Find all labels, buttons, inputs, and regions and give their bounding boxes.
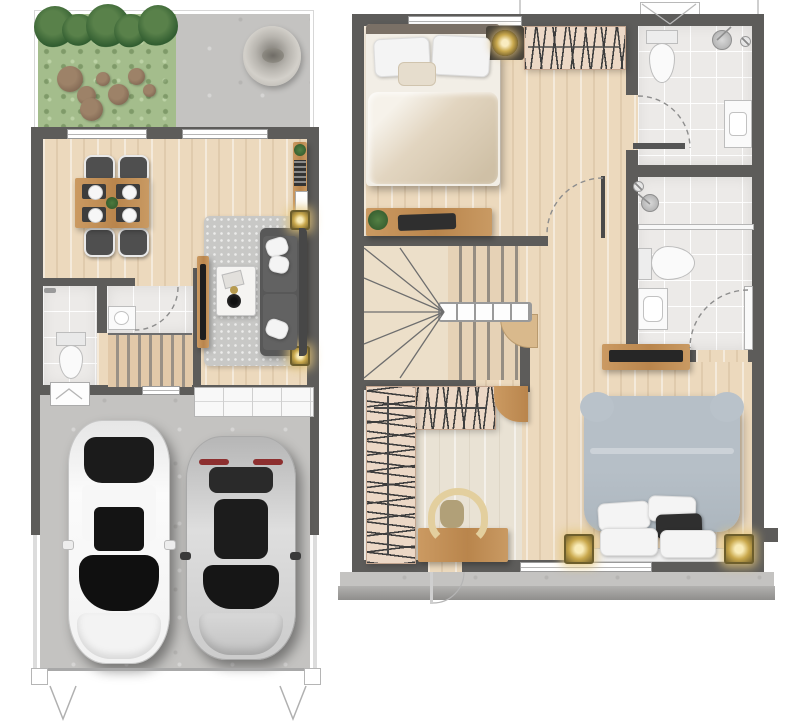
- stepping-stone: [80, 98, 103, 121]
- duvet-corner: [580, 392, 614, 422]
- balcony-divider: [752, 528, 778, 542]
- wall: [31, 278, 135, 286]
- bed-1-headboard: [366, 24, 500, 34]
- car-suv: [186, 436, 296, 660]
- sink-basin: [643, 296, 663, 322]
- gold-wall-lamp: [564, 534, 594, 564]
- garage-side-wall: [31, 395, 40, 535]
- gold-wall-lamp: [724, 534, 754, 564]
- bath2-door-gap: [696, 350, 748, 362]
- bed-1-pillow: [431, 35, 491, 78]
- suv-rear-glass: [209, 467, 273, 493]
- wall: [626, 14, 638, 95]
- shower-head: [712, 30, 732, 50]
- wall: [352, 236, 548, 246]
- handrail: [438, 302, 532, 322]
- tv: [609, 350, 683, 362]
- winder-steps: [364, 246, 448, 380]
- bed-1-duvet: [368, 92, 498, 184]
- vanity-basin: [729, 112, 747, 136]
- stepping-stone: [96, 72, 110, 86]
- floor-plan-canvas: [0, 0, 800, 722]
- master-bed-pillow: [600, 528, 658, 556]
- wall: [352, 14, 364, 570]
- sofa-backrest: [299, 228, 307, 356]
- window: [182, 129, 268, 139]
- suv-mirror: [290, 552, 301, 560]
- tv: [200, 264, 206, 340]
- sedan-sunroof: [94, 507, 144, 551]
- faucet-icon: [44, 288, 56, 293]
- sedan-hood: [77, 613, 161, 659]
- sedan-windshield: [79, 555, 159, 611]
- duvet-corner: [710, 392, 744, 422]
- wall: [31, 127, 43, 395]
- car-sedan: [68, 420, 170, 664]
- toilet-tank: [646, 30, 678, 44]
- dining-chair: [118, 228, 149, 257]
- balcony-edge: [338, 586, 775, 600]
- wall: [97, 286, 107, 333]
- balcony-door-leaf: [430, 572, 433, 604]
- wall-vent: [142, 386, 180, 395]
- garage-open-side: [33, 535, 37, 671]
- wall: [748, 350, 764, 362]
- closet-chair-cushion: [440, 500, 464, 528]
- bedroom-door-leaf: [601, 176, 605, 238]
- stone-ornament-center: [262, 48, 284, 63]
- plate: [88, 185, 103, 200]
- ceiling-downlight: [290, 210, 310, 230]
- toilet-tank: [56, 332, 86, 346]
- bed-1-small-pillow: [398, 62, 436, 86]
- suv-mirror: [180, 552, 191, 560]
- wardrobe-rack-left: [366, 386, 416, 564]
- suv-taillight: [199, 459, 229, 465]
- dining-chair: [84, 228, 115, 257]
- toilet-tank: [638, 248, 652, 280]
- wall: [752, 14, 764, 570]
- clothes-rack: [524, 26, 626, 70]
- shelf-books: [294, 160, 306, 186]
- master-bed-pillow: [660, 530, 716, 558]
- driveway-post: [31, 668, 48, 685]
- property-line: [757, 0, 759, 15]
- plate: [88, 208, 103, 223]
- garage-counter: [194, 387, 314, 417]
- stairs-first-floor: [108, 333, 192, 387]
- property-line: [519, 0, 521, 15]
- shelf-plant: [294, 144, 306, 156]
- bath2-door-leaf: [744, 286, 753, 350]
- shrub: [138, 5, 178, 47]
- desk-plant: [368, 210, 388, 230]
- sedan-mirror: [164, 540, 176, 550]
- plate: [122, 185, 137, 200]
- driveway-edge: [40, 668, 310, 671]
- shelf-frame: [295, 191, 308, 211]
- round-ceiling-lamp: [492, 30, 518, 56]
- driveway-post: [304, 668, 321, 685]
- storage-cabinet: [50, 382, 90, 406]
- laptop: [398, 213, 457, 231]
- vent-icon: [740, 36, 751, 47]
- suv-windshield: [203, 565, 279, 609]
- table-centerpiece: [106, 197, 118, 209]
- shower-head: [641, 194, 659, 212]
- vent-icon: [633, 181, 644, 192]
- duvet-fold: [590, 448, 734, 454]
- stepping-stone: [128, 68, 145, 85]
- sedan-rear-glass: [84, 437, 154, 483]
- wall: [626, 165, 764, 177]
- stepping-stone: [108, 84, 129, 105]
- plate: [122, 208, 137, 223]
- sedan-mirror: [62, 540, 74, 550]
- suv-taillight: [253, 459, 283, 465]
- table-decor-bowl: [227, 294, 241, 308]
- garage-open-side: [313, 535, 317, 671]
- bath1-door-leaf: [633, 143, 685, 149]
- stepping-stone: [143, 84, 156, 97]
- window: [67, 129, 147, 139]
- table-decor-cup: [230, 286, 238, 294]
- suv-roof-glass: [214, 499, 268, 559]
- washbasin-bowl: [114, 311, 129, 325]
- wall: [626, 177, 638, 350]
- suv-hood: [199, 613, 283, 655]
- shower-glass-partition: [638, 224, 754, 230]
